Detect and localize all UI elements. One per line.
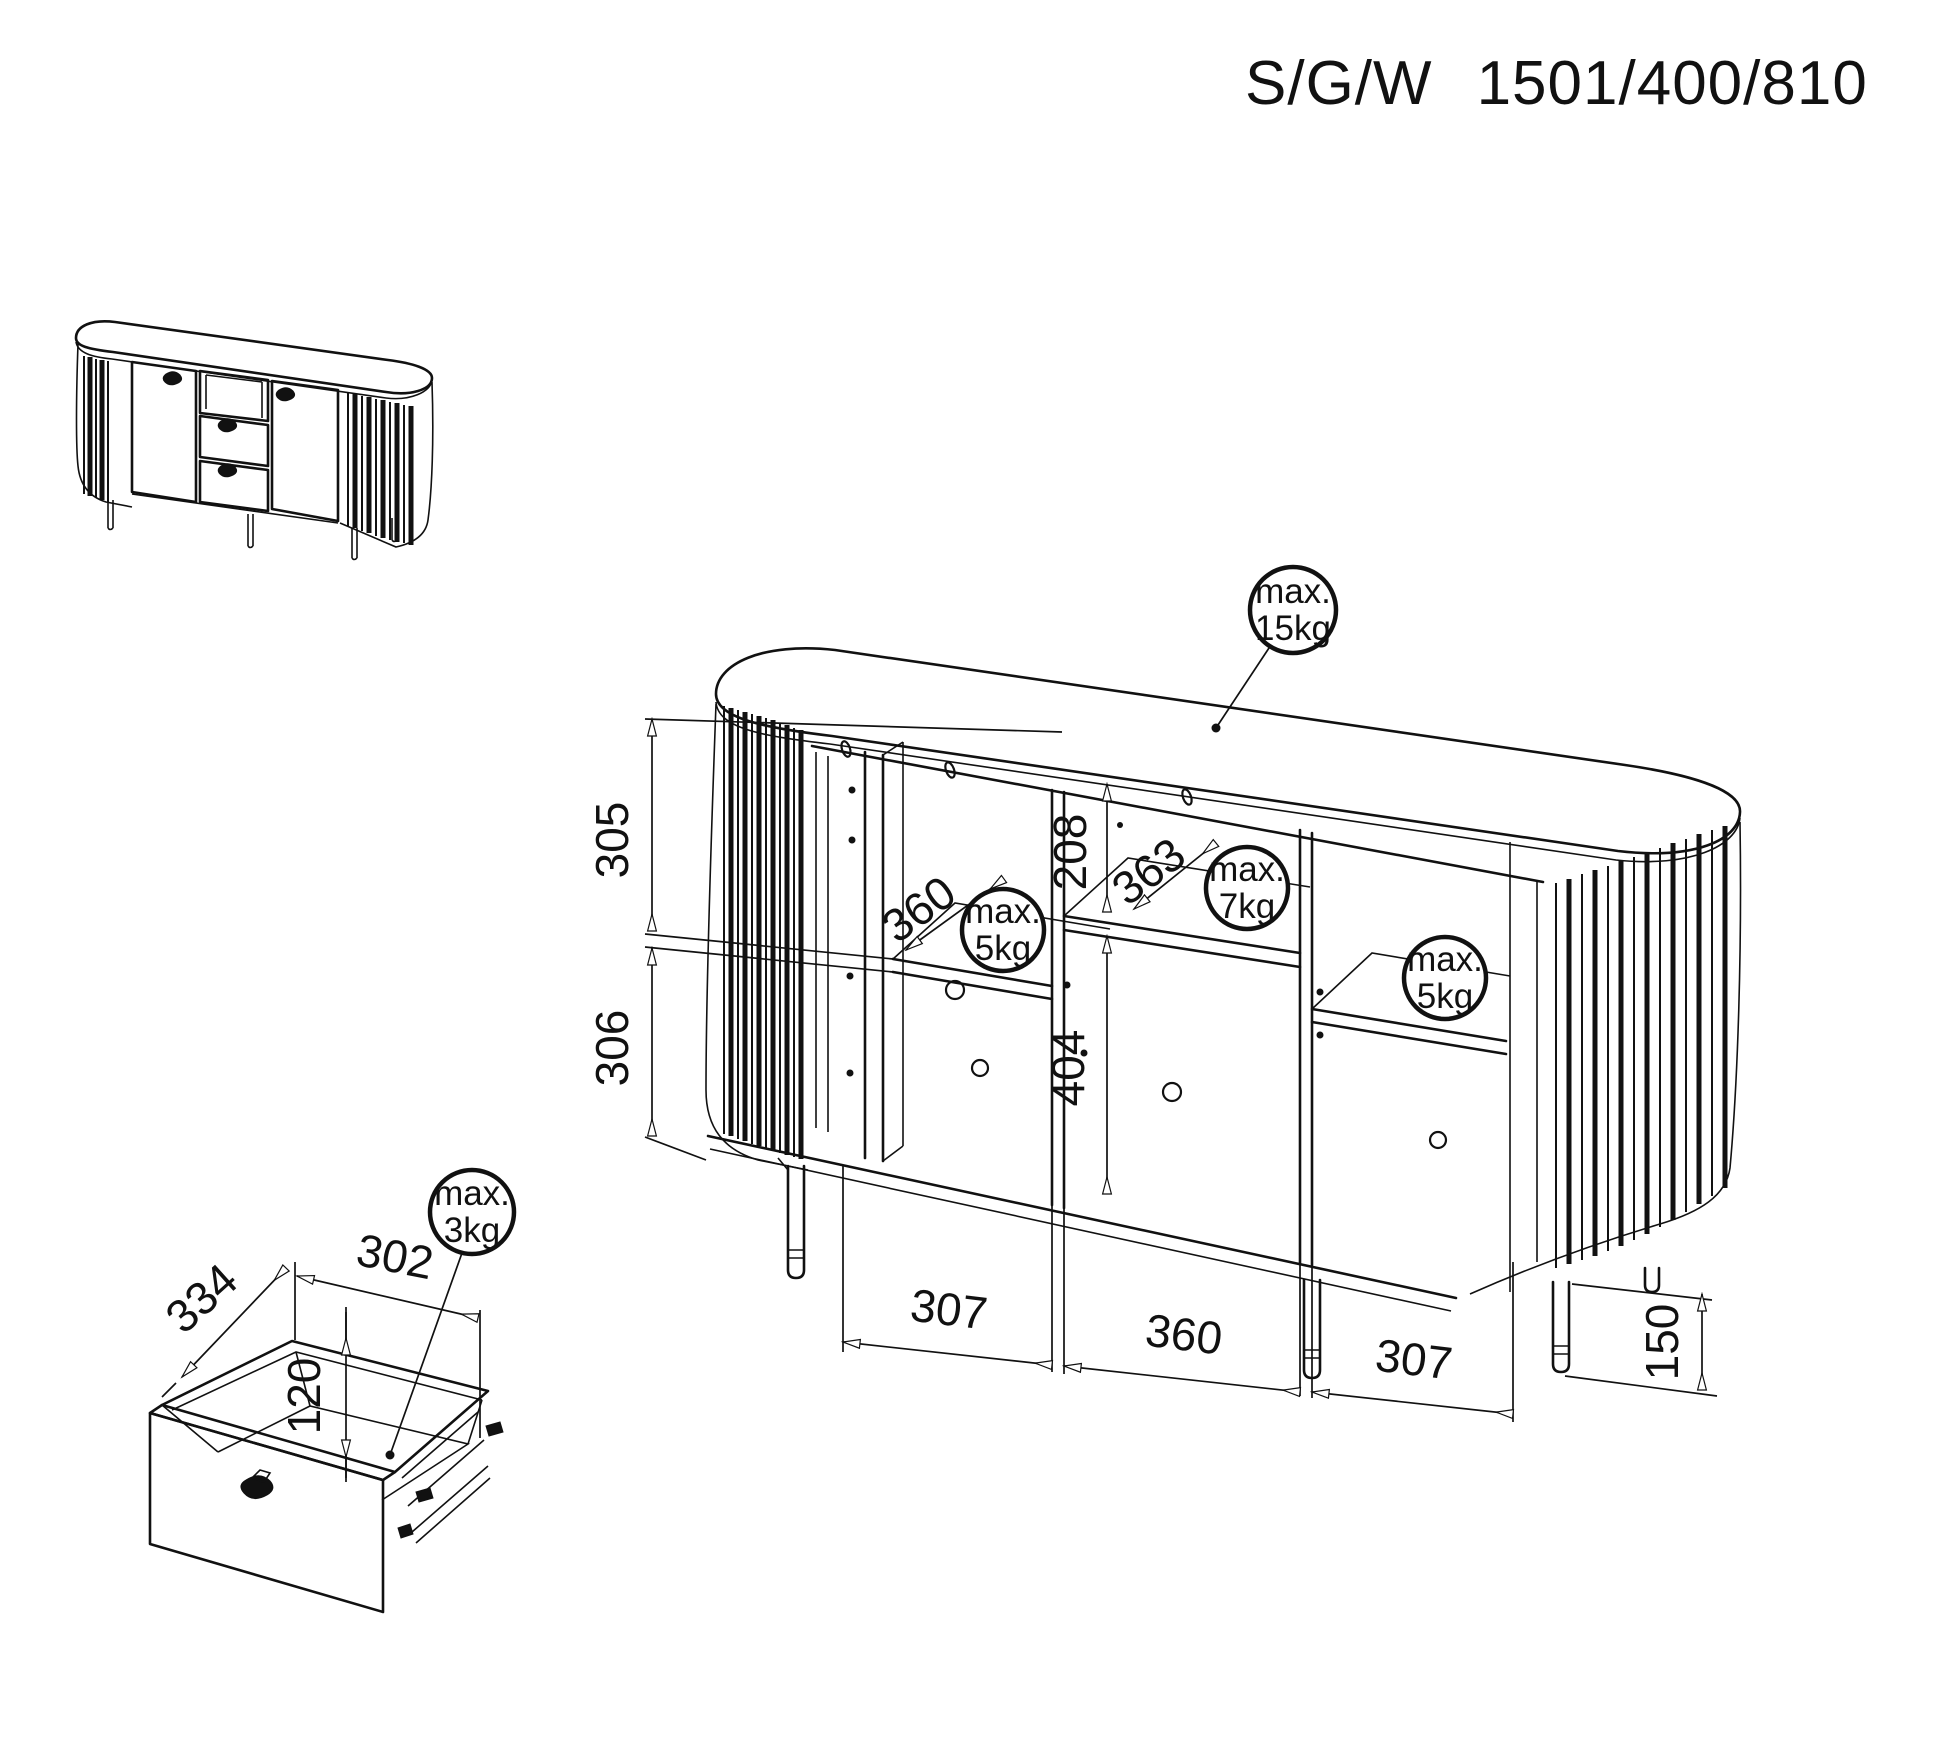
drawer-detail-view: 334 302 120 max. 3kg	[150, 1170, 514, 1612]
dim-305-label: 305	[586, 802, 638, 879]
thumb-right-flutes	[340, 382, 433, 547]
main-dimensions: 305 306 208 404 360 363 307 360 307 150	[586, 719, 1717, 1422]
dim-307-right-label: 307	[1373, 1329, 1456, 1390]
svg-text:max.: max.	[1407, 940, 1483, 979]
partition-mid-right	[1300, 830, 1312, 1265]
furniture-technical-sheet: S/G/W 1501/400/810	[0, 0, 1946, 1741]
dim-404-label: 404	[1042, 1030, 1094, 1107]
svg-text:max.: max.	[1209, 850, 1285, 889]
dim-334-label: 334	[155, 1253, 247, 1343]
dim-306-label: 306	[586, 1010, 638, 1087]
thumbnail-sideboard-view	[76, 321, 433, 559]
bottom-panel-edge	[708, 1136, 1456, 1298]
max-7kg-badge: max. 7kg	[1206, 847, 1288, 929]
thumb-right-door	[272, 381, 338, 521]
svg-text:7kg: 7kg	[1219, 887, 1275, 926]
max-3kg-badge: max. 3kg	[386, 1170, 515, 1460]
max-15kg-badge: max. 15kg	[1212, 567, 1337, 733]
thumb-left-door-handle	[163, 372, 181, 385]
dim-360-bottom-label: 360	[1143, 1304, 1226, 1365]
svg-text:max.: max.	[434, 1174, 510, 1213]
max-5kg-right-badge: max. 5kg	[1404, 937, 1486, 1019]
main-carcass-view	[706, 648, 1741, 1378]
dim-150-label: 150	[1636, 1304, 1688, 1381]
drawer-front-panel	[150, 1413, 383, 1612]
svg-text:max.: max.	[1255, 572, 1331, 611]
svg-text:max.: max.	[965, 892, 1041, 931]
thumb-right-door-handle	[276, 388, 294, 401]
left-fluted-end	[706, 704, 808, 1170]
dim-307-left-label: 307	[908, 1279, 991, 1340]
dim-302-label: 302	[352, 1223, 437, 1289]
partition-left	[840, 740, 903, 1161]
thumb-left-door	[132, 362, 196, 502]
max-5kg-left-badge: max. 5kg	[962, 889, 1044, 971]
thumb-left-flutes	[77, 344, 133, 507]
svg-text:3kg: 3kg	[444, 1211, 500, 1250]
dim-120-label: 120	[278, 1358, 330, 1435]
dim-360-shelf-label: 360	[872, 865, 965, 952]
svg-text:5kg: 5kg	[1417, 977, 1473, 1016]
dim-363-shelf-label: 363	[1102, 827, 1195, 915]
svg-text:5kg: 5kg	[975, 929, 1031, 968]
svg-text:15kg: 15kg	[1255, 609, 1331, 648]
dim-208-label: 208	[1044, 814, 1096, 891]
technical-drawing: 305 306 208 404 360 363 307 360 307 150	[0, 0, 1946, 1741]
